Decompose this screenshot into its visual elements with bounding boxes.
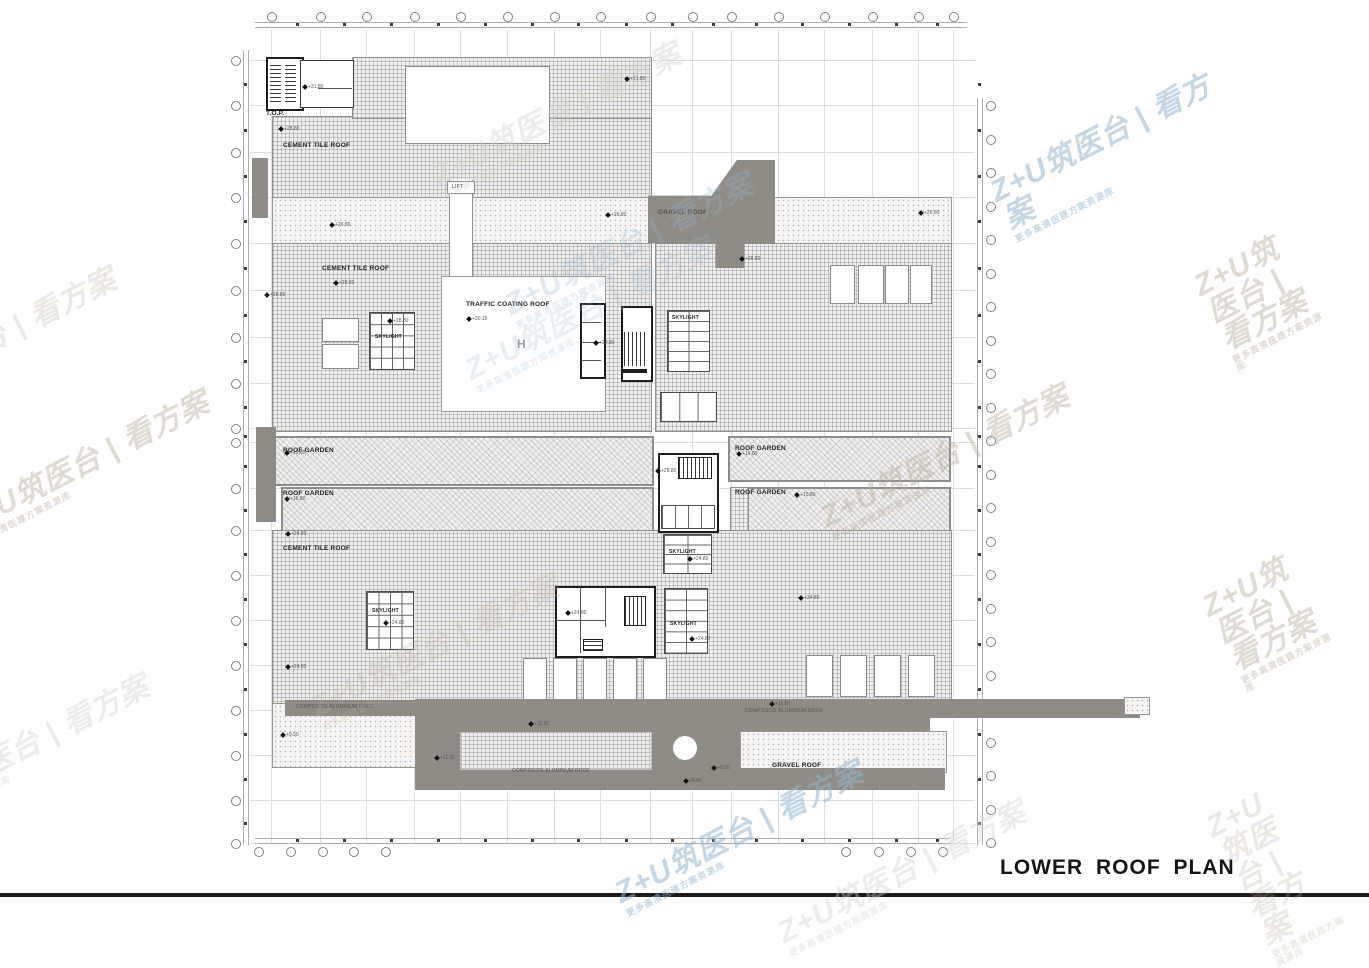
dimension-tick (978, 129, 981, 132)
gravel-roof-label: GRAVEL ROOF (772, 762, 821, 769)
watermark: Z+U筑医台 | 看方案更多高清医建方案资源库 (0, 387, 220, 548)
dimension-tick (244, 129, 247, 132)
grid-bubble (986, 771, 996, 781)
dimension-tick (244, 435, 247, 438)
level-flag-icon (687, 556, 693, 562)
level-flag-icon (689, 636, 695, 642)
grid-bubble (986, 403, 996, 413)
dimension-tick (978, 822, 981, 825)
dimension-tick (978, 778, 981, 781)
dimension-tick (978, 406, 981, 409)
dimension-tick (244, 220, 247, 223)
grid-bubble (349, 847, 359, 857)
level-value: +9.50 (286, 732, 299, 738)
stair-wall (623, 369, 647, 373)
grid-bubble (231, 101, 241, 111)
watermark-sub-text: 更多高清医建方案资源库 (0, 700, 160, 833)
elevator-machine (678, 457, 712, 479)
dimension-tick (712, 23, 715, 26)
grid-bubble (986, 235, 996, 245)
level-value: +28.80 (284, 126, 299, 132)
stair-treads (583, 639, 603, 651)
stair-treads (285, 64, 296, 102)
grid-bubble (986, 537, 996, 547)
level-flag-icon (739, 256, 745, 262)
top-of-parapet-label: T.O.P. (266, 110, 284, 117)
stair-treads (270, 64, 281, 102)
roof-unit (322, 344, 359, 369)
watermark-main-text: Z+U筑医台 | 看方案 (0, 387, 215, 538)
dimension-line (255, 22, 967, 23)
level-marker: +26.80 (330, 222, 350, 228)
dimension-tick (978, 83, 981, 86)
watermark-main-text: Z+U筑医台 | 看方案 (0, 671, 155, 822)
room-divider (605, 587, 606, 627)
level-value: +28.80 (393, 318, 408, 324)
grid-bubble (986, 202, 996, 212)
dimension-line (243, 50, 244, 845)
level-flag-icon (387, 318, 393, 324)
level-flag-icon (593, 340, 599, 346)
grid-bubble (986, 168, 996, 178)
level-flag-icon (383, 620, 389, 626)
grid-bubble (318, 847, 328, 857)
grid-bubble (914, 12, 924, 22)
grid-bubble (841, 847, 851, 857)
grid-bubble (231, 193, 241, 203)
dimension-tick (978, 267, 981, 270)
grid-bubble (986, 269, 996, 279)
lift-label: LIFT (452, 184, 463, 190)
level-flag-icon (264, 292, 270, 298)
level-marker: +31.80 (625, 76, 645, 82)
level-flag-icon (278, 126, 284, 132)
dimension-tick (244, 733, 247, 736)
helipad-h-mark: H (517, 337, 526, 351)
dimension-tick (671, 839, 674, 842)
grid-bubble (231, 751, 241, 761)
grid-bubble (286, 847, 296, 857)
grid-bubble (231, 661, 241, 671)
level-marker: +11.50 (529, 721, 549, 727)
grid-bubble (231, 438, 241, 448)
level-flag-icon (655, 468, 661, 474)
dimension-tick (978, 175, 981, 178)
watermark-sub-text: 更多高清医建方案资源库 (625, 786, 874, 919)
grid-bubble (986, 369, 996, 379)
level-marker: +28.80 (594, 340, 614, 346)
dimension-tick (244, 360, 247, 363)
level-marker: +24.80 (286, 664, 306, 670)
watermark-main-text: Z+U筑医台 | 看方案 (773, 797, 1031, 948)
dimension-tick (577, 23, 580, 26)
level-marker: +28.80 (656, 468, 676, 474)
dimension-tick (437, 839, 440, 842)
level-value: +28.80 (599, 340, 614, 346)
level-value: +26.80 (335, 222, 350, 228)
dimension-tick (244, 314, 247, 317)
level-value: +24.80 (571, 610, 586, 616)
grid-bubble (986, 570, 996, 580)
level-value: +11.50 (440, 755, 455, 761)
grid-bubble (231, 571, 241, 581)
dimension-tick (437, 23, 440, 26)
level-value: +16.80 (290, 496, 305, 502)
grid-bubble (688, 12, 698, 22)
grid-bubble (986, 604, 996, 614)
level-marker: +9.50 (684, 778, 702, 784)
dimension-tick (244, 643, 247, 646)
dimension-tick (978, 598, 981, 601)
level-flag-icon (285, 531, 291, 537)
grid-bubble (231, 286, 241, 296)
grid-bubble (774, 12, 784, 22)
level-flag-icon (284, 450, 290, 456)
cement-tile-roof-label: CEMENT TILE ROOF (322, 265, 389, 272)
dimension-tick (755, 23, 758, 26)
watermark: Z+U筑医台 | 看方案更多高清医建方案资源库 (773, 797, 1036, 958)
dimension-tick (978, 314, 981, 317)
grid-line-horizontal (250, 800, 975, 801)
level-flag-icon (302, 84, 308, 90)
louver-bays (661, 505, 715, 529)
level-flag-icon (711, 765, 717, 771)
dimension-line (255, 843, 950, 844)
watermark-main-text: Z+U筑医台 | 看方案 (0, 264, 122, 415)
grid-bubble (503, 12, 513, 22)
stair-treads (624, 332, 646, 366)
dimension-tick (244, 83, 247, 86)
level-value: +28.80 (745, 256, 760, 262)
grid-bubble (362, 12, 372, 22)
skylight-label: SKYLIGHT (375, 334, 402, 340)
level-flag-icon (280, 732, 286, 738)
level-marker: +11.50 (435, 755, 455, 761)
roof-opening (405, 66, 550, 144)
watermark-sub-text: 更多高清医建方案资源库 (1271, 911, 1358, 967)
level-flag-icon (683, 778, 689, 784)
dimension-line (248, 50, 249, 845)
dimension-tick (848, 839, 851, 842)
level-flag-icon (798, 595, 804, 601)
grid-bubble (410, 12, 420, 22)
gravel-roof-label: GRAVEL ROOF (658, 209, 707, 216)
roof-unit (553, 658, 577, 700)
watermark-sub-text: 更多高清医建方案资源库 (1231, 309, 1335, 374)
grid-bubble (231, 616, 241, 626)
grid-bubble (986, 503, 996, 513)
roof-end-block (1124, 697, 1150, 715)
level-value: +28.80 (270, 292, 285, 298)
roof-garden-left-upper (272, 436, 654, 486)
skylight-label: SKYLIGHT (372, 608, 399, 614)
dimension-tick (244, 598, 247, 601)
grid-bubble (231, 526, 241, 536)
roof-unit (523, 658, 547, 700)
roof-vent-row (660, 392, 717, 422)
grid-bubble (986, 470, 996, 480)
level-flag-icon (624, 76, 630, 82)
level-flag-icon (769, 701, 775, 707)
roof-unit (830, 265, 855, 304)
level-value: +19.80 (800, 492, 815, 498)
level-marker: +30.15 (467, 316, 487, 322)
traffic-coating-roof-label: TRAFFIC COATING ROOF (466, 301, 550, 308)
dimension-line (255, 27, 967, 28)
roof-unit (583, 658, 607, 700)
dimension-tick (978, 509, 981, 512)
level-marker: +26.80 (606, 212, 626, 218)
level-value: +26.80 (924, 210, 939, 216)
level-flag-icon (605, 212, 611, 218)
skylight-label: SKYLIGHT (672, 315, 699, 321)
dimension-tick (390, 839, 393, 842)
dimension-tick (390, 23, 393, 26)
composite-aluminum-roof-label: COMPOSITE ALUMINUM ROOF (512, 768, 590, 774)
dimension-tick (978, 688, 981, 691)
grid-bubble (231, 484, 241, 494)
level-marker: +24.80 (286, 531, 306, 537)
room-divider (556, 620, 605, 621)
level-flag-icon (434, 755, 440, 761)
dimension-tick (244, 509, 247, 512)
grid-bubble (874, 847, 884, 857)
grid-bubble (986, 637, 996, 647)
dimension-tick (978, 643, 981, 646)
roof-unit (322, 318, 359, 342)
level-value: +24.80 (389, 620, 404, 626)
dimension-tick (343, 23, 346, 26)
grid-bubble (231, 239, 241, 249)
grid-bubble (254, 847, 264, 857)
level-value: +19.80 (742, 451, 757, 457)
level-value: +30.15 (472, 316, 487, 322)
dimension-tick (671, 23, 674, 26)
composite-aluminum-roof-label: COMPOSITE ALUMINUM ROOF (745, 708, 823, 714)
dimension-tick (625, 839, 628, 842)
level-marker: +24.80 (799, 595, 819, 601)
grid-bubble (456, 12, 466, 22)
grid-bubble (267, 12, 277, 22)
watermark-sub-text: 更多高清医建方案资源库 (1240, 632, 1338, 694)
level-marker: +28.80 (740, 256, 760, 262)
level-marker: +19.80 (737, 451, 757, 457)
canopy-strip (252, 158, 268, 218)
level-marker: +24.80 (384, 620, 404, 626)
level-marker: +24.80 (566, 610, 586, 616)
roof-unit (840, 655, 867, 697)
roof-hatch-panel (460, 732, 652, 770)
grid-bubble (231, 796, 241, 806)
grid-bubble (231, 706, 241, 716)
watermark-sub-text: 更多高清医建方案资源库 (0, 416, 220, 549)
level-flag-icon (736, 451, 742, 457)
level-value: +11.50 (534, 721, 549, 727)
roof-garden-left-lower (281, 487, 654, 533)
level-marker: +24.80 (690, 636, 710, 642)
level-marker: +28.80 (388, 318, 408, 324)
dimension-tick (978, 553, 981, 556)
dimension-tick (625, 23, 628, 26)
level-value: +31.80 (308, 84, 323, 90)
watermark-main-text: Z+U筑医台 | 看方案 (986, 66, 1240, 235)
dimension-tick (978, 360, 981, 363)
dimension-tick (978, 465, 981, 468)
level-value: +24.80 (693, 556, 708, 562)
level-value: +24.80 (804, 595, 819, 601)
grid-bubble (986, 135, 996, 145)
level-marker: +19.80 (795, 492, 815, 498)
level-marker: +28.80 (279, 126, 299, 132)
dimension-line (982, 98, 983, 845)
roof-drain-circle (673, 736, 697, 760)
level-value: +19.80 (290, 450, 305, 456)
level-marker: +24.80 (688, 556, 708, 562)
grid-bubble (986, 302, 996, 312)
grid-bubble (231, 424, 241, 434)
roof-unit (643, 658, 667, 700)
dimension-tick (755, 839, 758, 842)
grid-bubble (231, 56, 241, 66)
skylight-label: SKYLIGHT (669, 549, 696, 555)
watermark: Z+U筑医台 | 看方案更多高清医建方案资源库 (1189, 227, 1334, 374)
dimension-tick (978, 435, 981, 438)
dimension-tick (848, 23, 851, 26)
dimension-tick (244, 175, 247, 178)
watermark: Z+U筑医台 | 看方案更多高清医建方案资源库 (1198, 550, 1338, 694)
level-marker: +19.80 (285, 450, 305, 456)
roof-unit (874, 655, 901, 697)
dimension-tick (531, 23, 534, 26)
composite-aluminum-roof-label: COMPOSITE ALUMINUM ROOF (296, 704, 374, 710)
watermark-sub-text: 更多高清医建方案资源库 (0, 293, 127, 426)
grid-bubble (231, 333, 241, 343)
dimension-tick (801, 839, 804, 842)
grid-bubble (596, 12, 606, 22)
composite-strip-below-gravel (740, 768, 945, 790)
dimension-tick (978, 220, 981, 223)
level-marker: +28.80 (334, 280, 354, 286)
dimension-tick (244, 465, 247, 468)
dimension-tick (978, 733, 981, 736)
dimension-tick (244, 406, 247, 409)
level-value: +24.80 (695, 636, 710, 642)
roof-unit (885, 265, 909, 304)
roof-unit (613, 658, 637, 700)
level-flag-icon (466, 316, 472, 322)
level-value: +9.50 (717, 765, 730, 771)
watermark-sub-text: 更多高清医建方案资源库 (1014, 121, 1244, 244)
dimension-tick (936, 839, 939, 842)
grid-bubble (550, 12, 560, 22)
roof-unit (908, 655, 935, 697)
dimension-line (255, 838, 950, 839)
watermark-main-text: Z+U筑医台 | 看方案 (1189, 227, 1325, 356)
dimension-tick (484, 839, 487, 842)
grid-bubble (938, 847, 948, 857)
level-value: +28.80 (661, 468, 676, 474)
grid-bubble (231, 148, 241, 158)
grid-bubble (986, 101, 996, 111)
dimension-tick (296, 839, 299, 842)
roof-garden-label: ROOF GARDEN (735, 489, 786, 496)
plan-title: LOWER ROOF PLAN (1000, 856, 1235, 880)
roof-garden-right-upper (728, 436, 951, 482)
dimension-tick (244, 267, 247, 270)
watermark: Z+U筑医台 | 看方案更多高清医建方案资源库 (0, 264, 127, 425)
dimension-tick (244, 822, 247, 825)
dimension-tick (801, 23, 804, 26)
level-marker: +31.80 (303, 84, 323, 90)
level-flag-icon (794, 492, 800, 498)
grid-bubble (986, 738, 996, 748)
level-value: +31.80 (630, 76, 645, 82)
grid-bubble (727, 12, 737, 22)
dimension-tick (895, 23, 898, 26)
level-value: +24.80 (291, 531, 306, 537)
level-flag-icon (918, 210, 924, 216)
dimension-tick (531, 839, 534, 842)
level-flag-icon (285, 664, 291, 670)
cement-tile-roof-label: CEMENT TILE ROOF (283, 142, 350, 149)
level-flag-icon (333, 280, 339, 286)
dimension-tick (712, 839, 715, 842)
cement-tile-roof-label: CEMENT TILE ROOF (283, 545, 350, 552)
level-marker: +26.80 (919, 210, 939, 216)
watermark: Z+U筑医台 | 看方案更多高清医建方案资源库 (986, 66, 1245, 245)
grid-bubble (986, 336, 996, 346)
grid-bubble (906, 847, 916, 857)
roof-unit (806, 655, 833, 697)
skylight-label: SKYLIGHT (670, 621, 697, 627)
dimension-tick (343, 839, 346, 842)
level-flag-icon (528, 721, 534, 727)
watermark: Z+U筑医台 | 看方案更多高清医建方案资源库 (0, 671, 160, 832)
roof-unit (910, 265, 932, 304)
dimension-tick (895, 839, 898, 842)
dimension-tick (484, 23, 487, 26)
grid-bubble (949, 12, 959, 22)
level-flag-icon (284, 496, 290, 502)
dimension-tick (244, 778, 247, 781)
level-value: +11.50 (775, 701, 790, 707)
dimension-tick (244, 688, 247, 691)
level-marker: +11.50 (770, 701, 790, 707)
level-marker: +16.80 (285, 496, 305, 502)
level-value: +9.50 (689, 778, 702, 784)
grid-bubble (986, 671, 996, 681)
grid-bubble (231, 379, 241, 389)
roof-plan-drawing: TRAFFIC COATING ROOF H SKYLIGHT SKYLIGHT… (0, 0, 1369, 907)
grid-bubble (986, 805, 996, 815)
grid-bubble (381, 847, 391, 857)
grid-bubble (316, 12, 326, 22)
canopy-strip (256, 427, 276, 522)
level-marker: +28.80 (265, 292, 285, 298)
grid-bubble (820, 12, 830, 22)
dimension-tick (296, 23, 299, 26)
level-marker: +9.50 (712, 765, 730, 771)
dimension-tick (244, 553, 247, 556)
grid-bubble (868, 12, 878, 22)
room-divider (581, 322, 601, 323)
roof-unit (858, 265, 884, 304)
grid-bubble (986, 838, 996, 848)
dimension-tick (577, 839, 580, 842)
grid-bubble (231, 839, 241, 849)
dimension-tick (936, 23, 939, 26)
grid-bubble (646, 12, 656, 22)
